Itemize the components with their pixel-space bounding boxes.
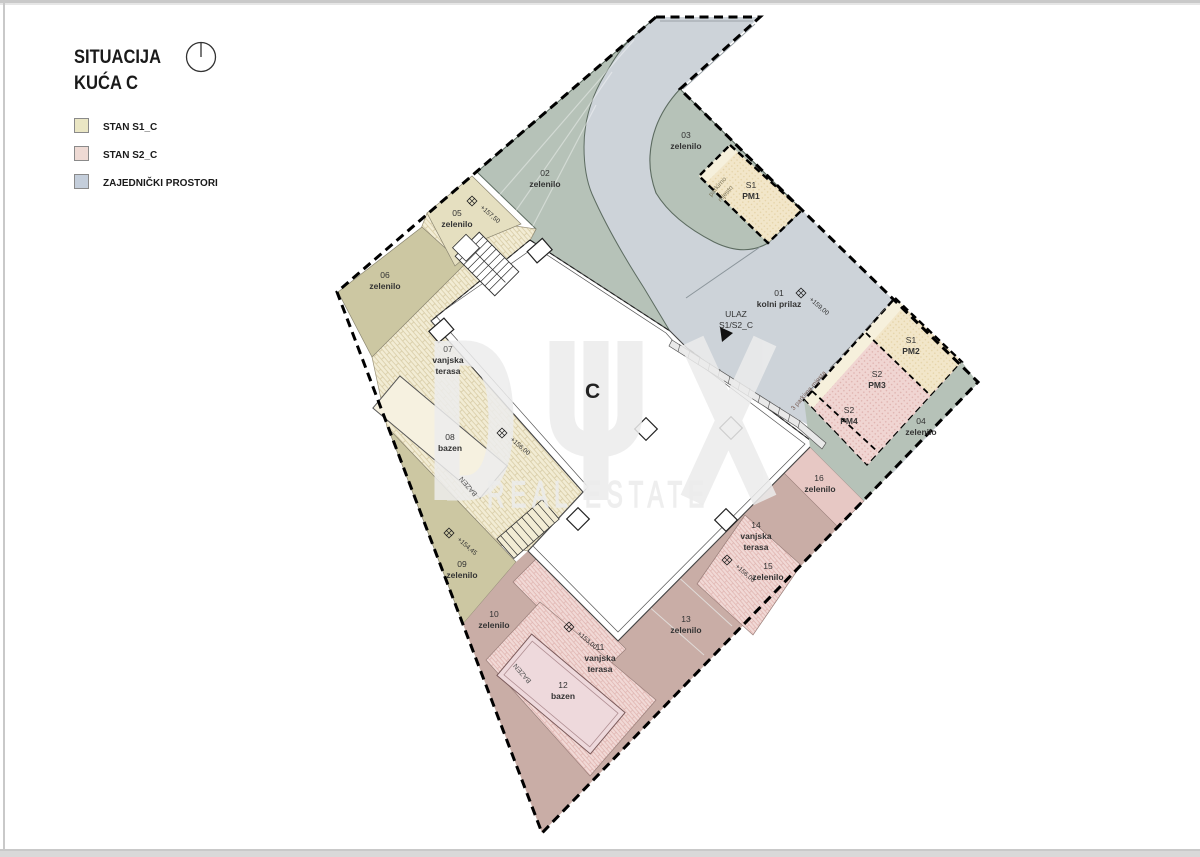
svg-text:06: 06 [380, 270, 390, 280]
svg-text:STAN S1_C: STAN S1_C [103, 122, 157, 133]
svg-text:09: 09 [457, 559, 467, 569]
svg-text:zelenilo: zelenilo [529, 179, 560, 189]
svg-text:PM1: PM1 [742, 191, 760, 201]
svg-text:02: 02 [540, 168, 550, 178]
svg-text:zelenilo: zelenilo [478, 620, 509, 630]
svg-text:15: 15 [763, 561, 773, 571]
svg-text:zelenilo: zelenilo [752, 572, 783, 582]
svg-text:bazen: bazen [551, 691, 575, 701]
svg-text:04: 04 [916, 416, 926, 426]
svg-text:07: 07 [443, 344, 453, 354]
svg-text:KUĆA C: KUĆA C [74, 72, 138, 94]
svg-text:ZAJEDNIČKI PROSTORI: ZAJEDNIČKI PROSTORI [103, 176, 218, 189]
svg-text:C: C [585, 380, 600, 403]
svg-text:16: 16 [814, 473, 824, 483]
svg-text:PM4: PM4 [840, 416, 858, 426]
svg-text:10: 10 [489, 609, 499, 619]
svg-text:zelenilo: zelenilo [441, 219, 472, 229]
svg-text:zelenilo: zelenilo [369, 281, 400, 291]
svg-text:S1/S2_C: S1/S2_C [719, 320, 753, 330]
svg-text:08: 08 [445, 432, 455, 442]
svg-text:S2: S2 [872, 369, 883, 379]
svg-text:zelenilo: zelenilo [670, 141, 701, 151]
svg-text:terasa: terasa [743, 542, 768, 552]
svg-text:vanjska: vanjska [584, 653, 615, 663]
svg-text:SITUACIJA: SITUACIJA [74, 47, 161, 68]
svg-text:terasa: terasa [435, 366, 460, 376]
svg-text:zelenilo: zelenilo [905, 427, 936, 437]
svg-text:vanjska: vanjska [432, 355, 463, 365]
svg-text:S1: S1 [906, 335, 917, 345]
svg-text:zelenilo: zelenilo [804, 484, 835, 494]
svg-text:bazen: bazen [438, 443, 462, 453]
svg-text:kolni prilaz: kolni prilaz [757, 299, 801, 309]
svg-text:REAL ESTATE: REAL ESTATE [487, 474, 710, 515]
svg-text:12: 12 [558, 680, 568, 690]
svg-text:01: 01 [774, 288, 784, 298]
svg-text:PM2: PM2 [902, 346, 920, 356]
svg-text:S2: S2 [844, 405, 855, 415]
svg-text:terasa: terasa [587, 664, 612, 674]
svg-text:ULAZ: ULAZ [725, 309, 747, 319]
svg-text:vanjska: vanjska [740, 531, 771, 541]
svg-text:zelenilo: zelenilo [446, 570, 477, 580]
svg-text:STAN S2_C: STAN S2_C [103, 150, 157, 161]
svg-text:03: 03 [681, 130, 691, 140]
svg-text:14: 14 [751, 520, 761, 530]
svg-text:zelenilo: zelenilo [670, 625, 701, 635]
svg-text:PM3: PM3 [868, 380, 886, 390]
svg-text:13: 13 [681, 614, 691, 624]
svg-text:05: 05 [452, 208, 462, 218]
svg-text:S1: S1 [746, 180, 757, 190]
